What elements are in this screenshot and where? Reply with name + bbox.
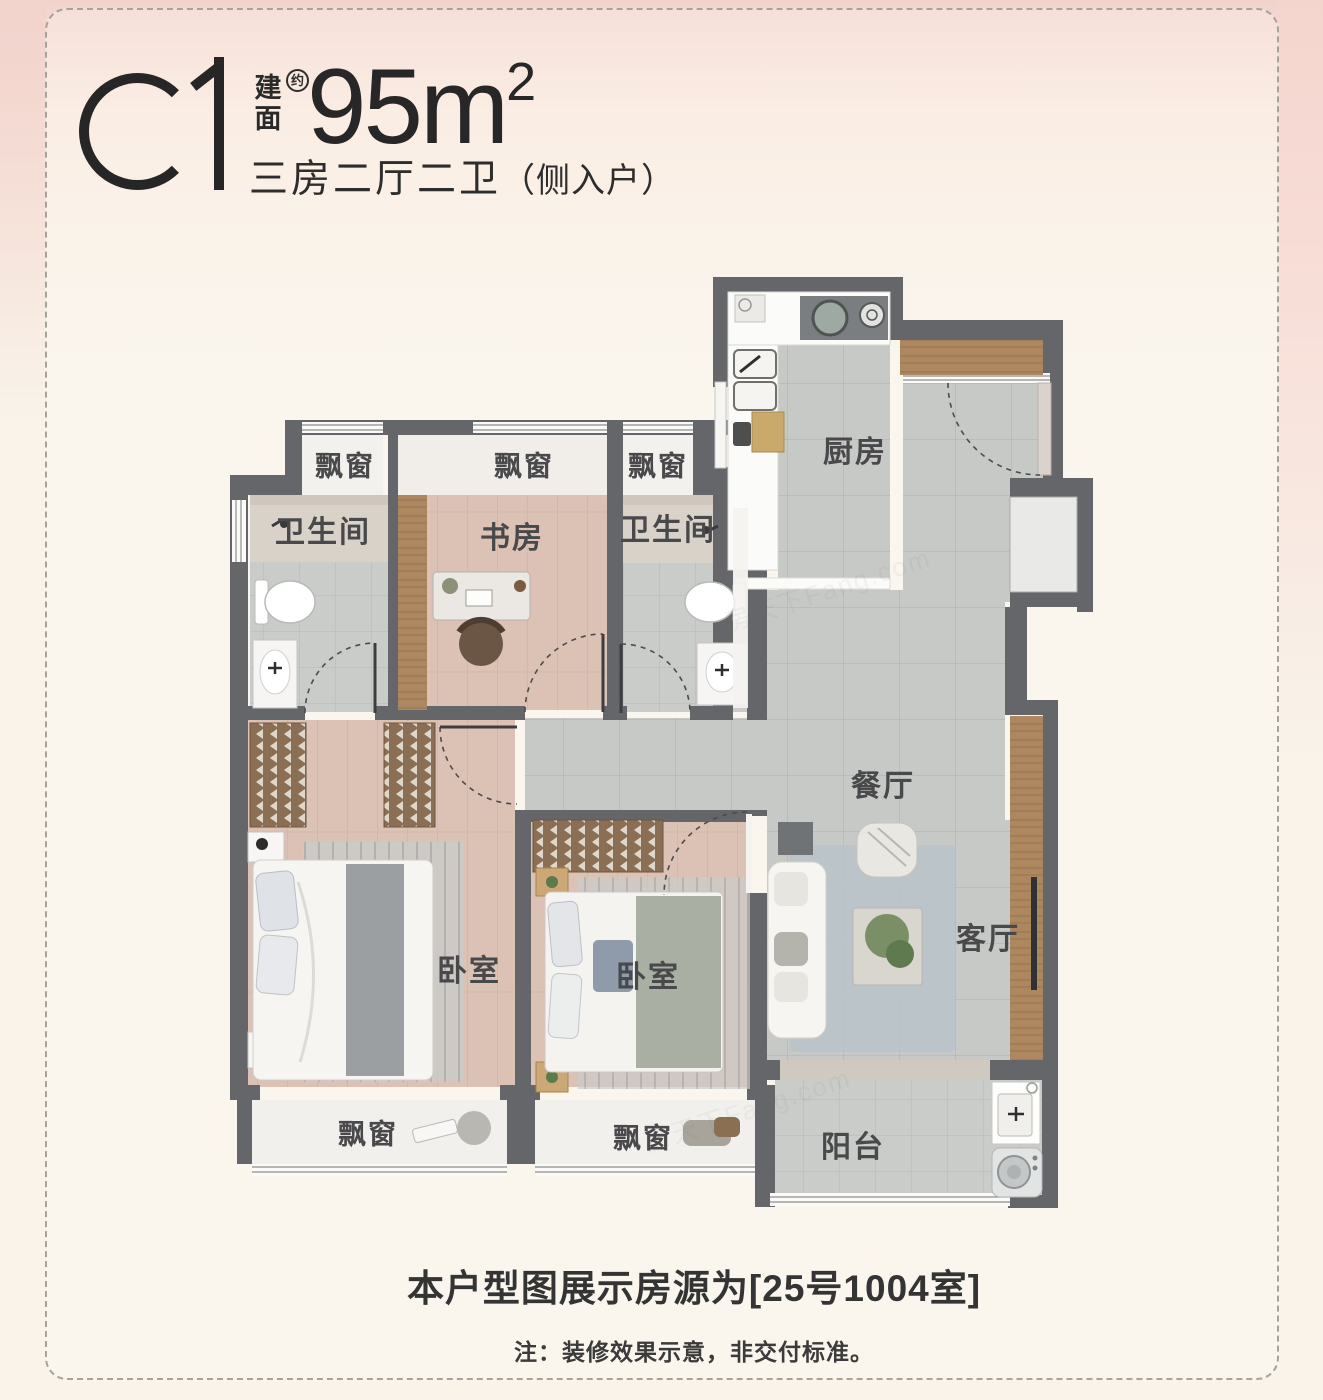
room-label-living: 客厅 xyxy=(956,922,1020,956)
room-label-bay-top-mid: 飘窗 xyxy=(494,449,554,481)
background-tint-left xyxy=(0,0,46,420)
top-bay-windows xyxy=(302,422,693,433)
entry-shelf xyxy=(900,340,1043,375)
kitchen-sink-2 xyxy=(734,382,776,410)
area-label-stacked: 建 面 xyxy=(252,73,284,135)
disclaimer-text: 注：装修效果示意，非交付标准。 xyxy=(77,1333,1311,1367)
kitchen-bin xyxy=(733,422,751,446)
background-tint-right xyxy=(1277,0,1323,760)
room-label-bay-bottom-mid: 飘窗 xyxy=(613,1121,673,1153)
console-table xyxy=(778,822,813,855)
kitchen-sliding-door xyxy=(715,382,726,468)
bedroom2-wardrobe xyxy=(533,820,663,872)
balcony-fixtures xyxy=(992,1082,1042,1197)
room-label-bathroom-right: 卫生间 xyxy=(620,514,716,547)
area-label-bottom: 面 xyxy=(252,104,284,135)
bedroom1-closet-a xyxy=(250,723,306,827)
cutting-board xyxy=(752,412,784,452)
room-label-bay-bottom-left: 飘窗 xyxy=(338,1117,398,1149)
side-window-bath1 xyxy=(232,500,246,562)
layout-entry-note: （侧入户） xyxy=(501,162,676,200)
room-label-bathroom-left: 卫生间 xyxy=(275,516,371,549)
room-label-bedroom-left: 卧室 xyxy=(437,954,501,988)
unit-code-c-glyph xyxy=(79,73,196,190)
approx-circle-badge: 约 xyxy=(286,69,309,92)
listing-source-text: 本户型图展示房源为[25号1004室] xyxy=(77,1258,1311,1312)
area-label-top: 建 xyxy=(252,73,284,104)
room-label-bedroom-mid: 卧室 xyxy=(616,960,680,994)
room-label-kitchen: 厨房 xyxy=(823,436,887,469)
bedroom1-closet-b xyxy=(384,723,435,827)
area-exponent: 2 xyxy=(506,52,536,112)
bedroom1-blanket xyxy=(346,864,404,1076)
room-label-study: 书房 xyxy=(480,522,544,555)
tv-cabinet xyxy=(1010,716,1043,1060)
room-label-dining: 餐厅 xyxy=(851,770,915,803)
layout-rooms-text: 三房二厅二卫 xyxy=(249,158,501,201)
floorplan-drawing: 房天下Fang.com 房天下Fang.com 飘窗 飘窗 飘窗 卫生间 书房 … xyxy=(228,272,1098,1212)
room-label-balcony: 阳台 xyxy=(821,1130,885,1164)
toilet-1 xyxy=(265,581,315,623)
layout-subtitle: 三房二厅二卫（侧入户） xyxy=(249,148,676,204)
study-wardrobe xyxy=(398,495,427,710)
room-label-bay-top-left: 飘窗 xyxy=(315,449,375,481)
entry-cabinet xyxy=(1010,497,1077,592)
floorplan-page: 建 面 约 95m2 三房二厅二卫（侧入户） xyxy=(0,0,1323,1400)
entry-threshold xyxy=(1038,383,1051,475)
kitchen-sink-1 xyxy=(734,350,776,378)
tv xyxy=(1031,877,1037,990)
room-label-bay-top-right: 飘窗 xyxy=(628,449,688,481)
plan-footer: 本户型图展示房源为[25号1004室] 注：装修效果示意，非交付标准。 xyxy=(77,1258,1311,1367)
unit-code-1-glyph xyxy=(214,57,224,190)
